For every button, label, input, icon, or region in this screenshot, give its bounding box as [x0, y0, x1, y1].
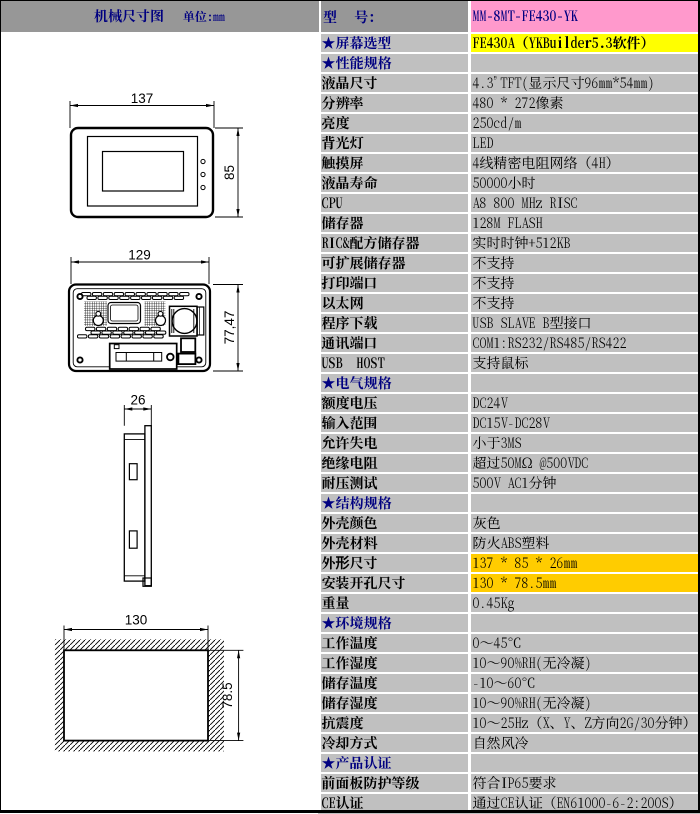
svg-text:77,47: 77,47 — [222, 311, 237, 345]
svg-text:129: 129 — [128, 248, 151, 263]
svg-text:78.5: 78.5 — [220, 682, 235, 708]
svg-text:26: 26 — [130, 393, 145, 408]
svg-text:137: 137 — [131, 91, 154, 106]
svg-text:130: 130 — [125, 613, 148, 628]
svg-text:85: 85 — [222, 165, 237, 180]
